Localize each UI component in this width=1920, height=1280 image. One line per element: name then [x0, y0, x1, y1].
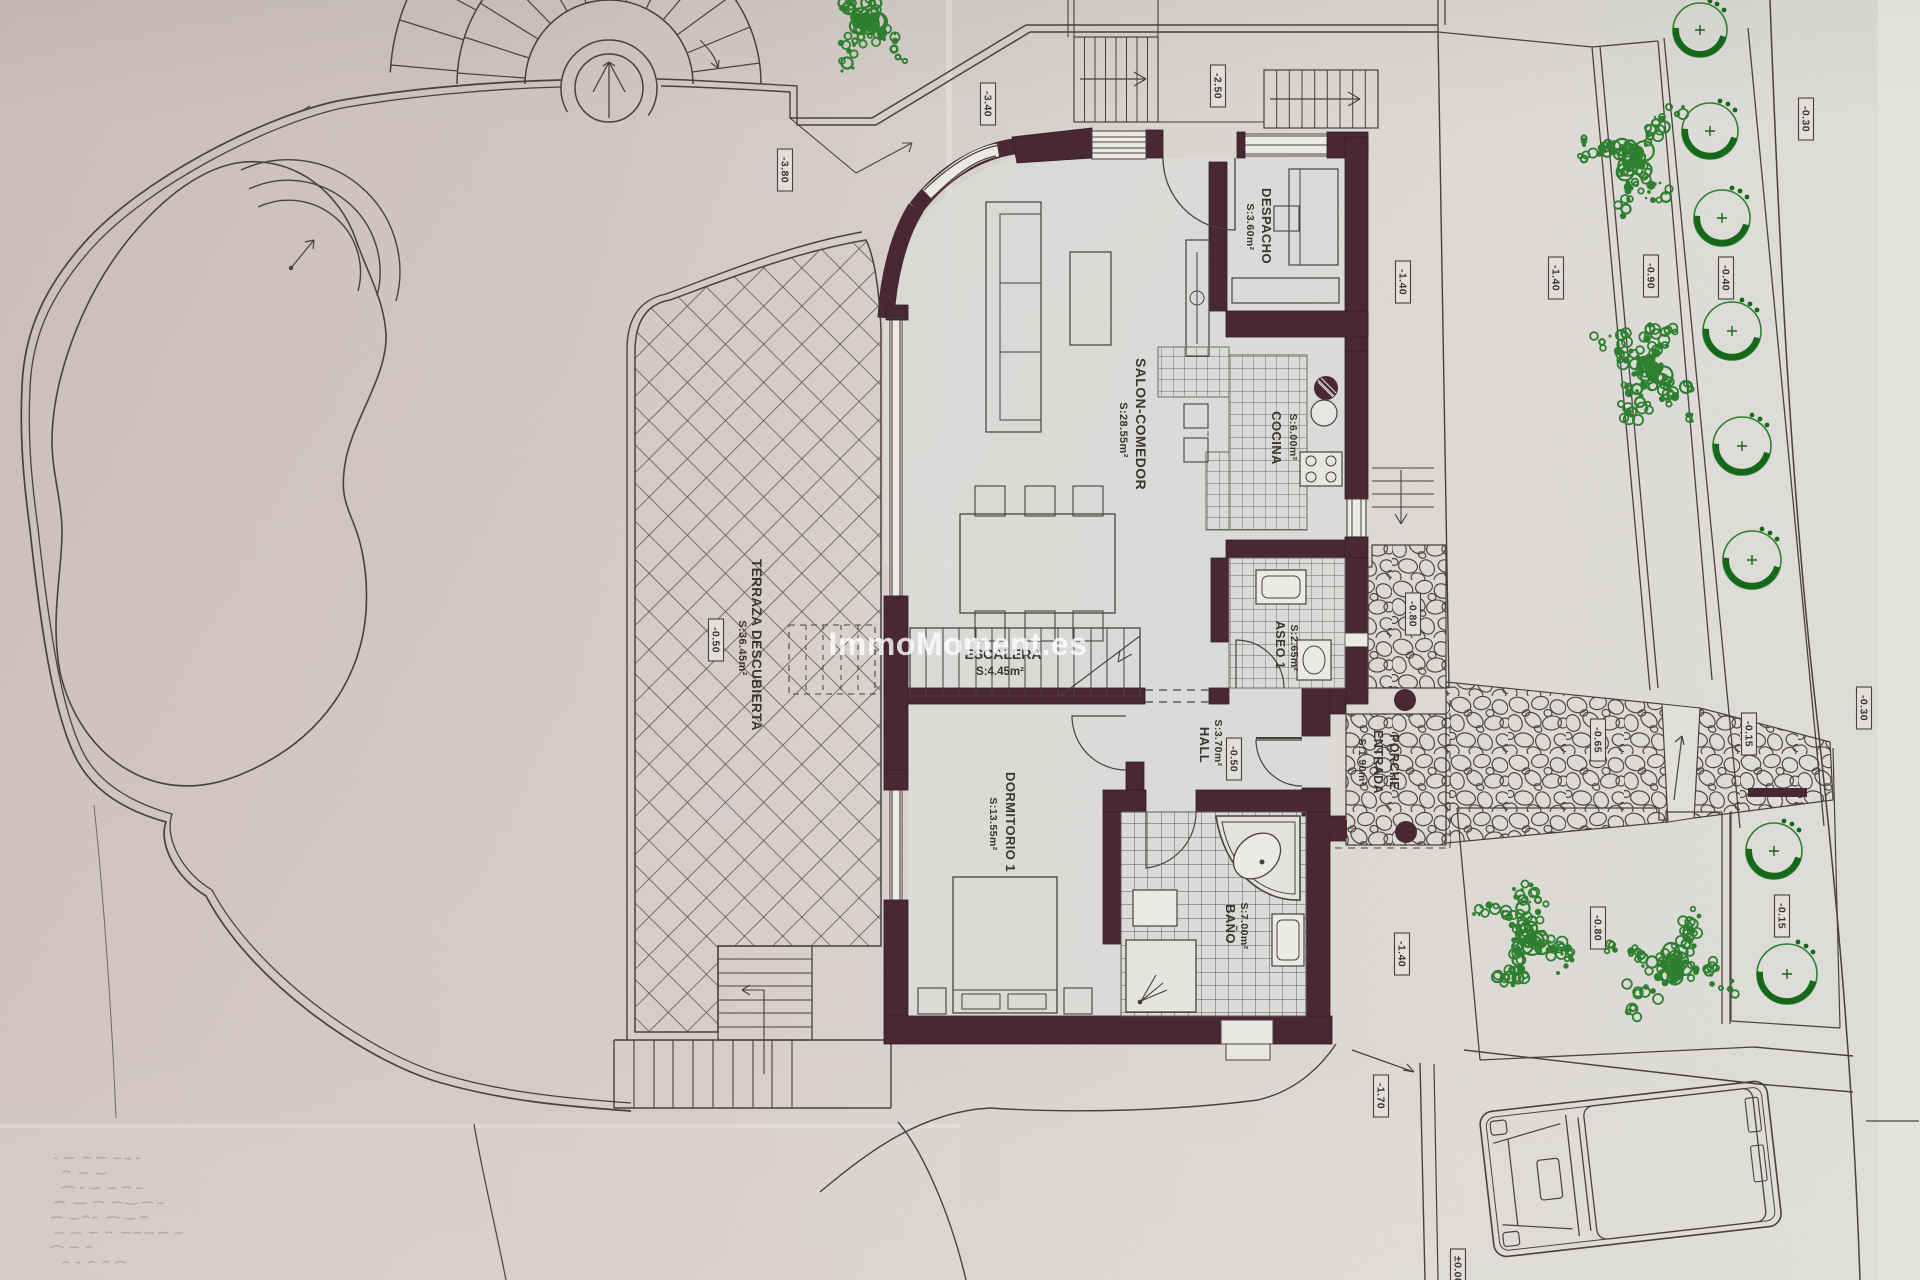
svg-text:S:28.55m²: S:28.55m² — [1117, 402, 1129, 458]
svg-text:COCINA: COCINA — [1269, 411, 1284, 465]
svg-text:-1.40: -1.40 — [1396, 941, 1408, 967]
svg-text:TERRAZA DESCUBIERTA: TERRAZA DESCUBIERTA — [749, 559, 764, 731]
svg-text:ASEO 1: ASEO 1 — [1273, 621, 1287, 669]
svg-text:ENTRADA: ENTRADA — [1371, 730, 1385, 794]
svg-text:S:13.55m²: S:13.55m² — [987, 797, 999, 850]
svg-text:S:7.00m²: S:7.00m² — [1238, 903, 1250, 950]
svg-text:-0.80: -0.80 — [1407, 601, 1419, 627]
svg-text:HALL: HALL — [1197, 727, 1212, 763]
svg-text:-0.30: -0.30 — [1858, 695, 1870, 721]
svg-text:S:2.65m²: S:2.65m² — [1288, 625, 1300, 672]
svg-text:S:3.60m²: S:3.60m² — [1244, 204, 1256, 251]
svg-text:-3.40: -3.40 — [982, 91, 994, 117]
svg-text:-0.90: -0.90 — [1645, 263, 1657, 289]
svg-text:BAÑO: BAÑO — [1223, 904, 1238, 944]
svg-text:-0.15: -0.15 — [1743, 721, 1755, 747]
svg-text:DORMITORIO 1: DORMITORIO 1 — [1003, 772, 1018, 872]
svg-text:-0.30: -0.30 — [1800, 106, 1812, 132]
svg-text:-1.40: -1.40 — [1397, 269, 1409, 295]
svg-text:-0.50: -0.50 — [1228, 746, 1240, 772]
svg-text:-0.65: -0.65 — [1592, 727, 1604, 753]
svg-text:-1.40: -1.40 — [1550, 265, 1562, 291]
svg-text:S:4.45m²: S:4.45m² — [976, 666, 1024, 678]
svg-text:DESPACHO: DESPACHO — [1259, 188, 1274, 264]
svg-text:±0.00: ±0.00 — [1452, 1256, 1464, 1280]
svg-text:S:36.45m²: S:36.45m² — [736, 620, 748, 676]
svg-text:-0.80: -0.80 — [1592, 915, 1604, 941]
svg-text:-0.40: -0.40 — [1720, 265, 1732, 291]
svg-text:-1.70: -1.70 — [1375, 1083, 1387, 1109]
svg-text:S:6.00m²: S:6.00m² — [1287, 414, 1299, 461]
svg-text:-0.50: -0.50 — [710, 627, 722, 653]
svg-text:ImmoMoment.es: ImmoMoment.es — [829, 626, 1088, 662]
svg-text:SALON-COMEDOR: SALON-COMEDOR — [1133, 358, 1149, 490]
svg-text:S:1.90m²: S:1.90m² — [1356, 739, 1368, 786]
svg-text:-0.15: -0.15 — [1776, 903, 1788, 929]
svg-text:-2.50: -2.50 — [1212, 73, 1224, 99]
svg-text:PORCHE: PORCHE — [1387, 734, 1401, 790]
svg-text:S:3.70m²: S:3.70m² — [1212, 720, 1224, 767]
svg-text:-3.80: -3.80 — [779, 157, 791, 183]
